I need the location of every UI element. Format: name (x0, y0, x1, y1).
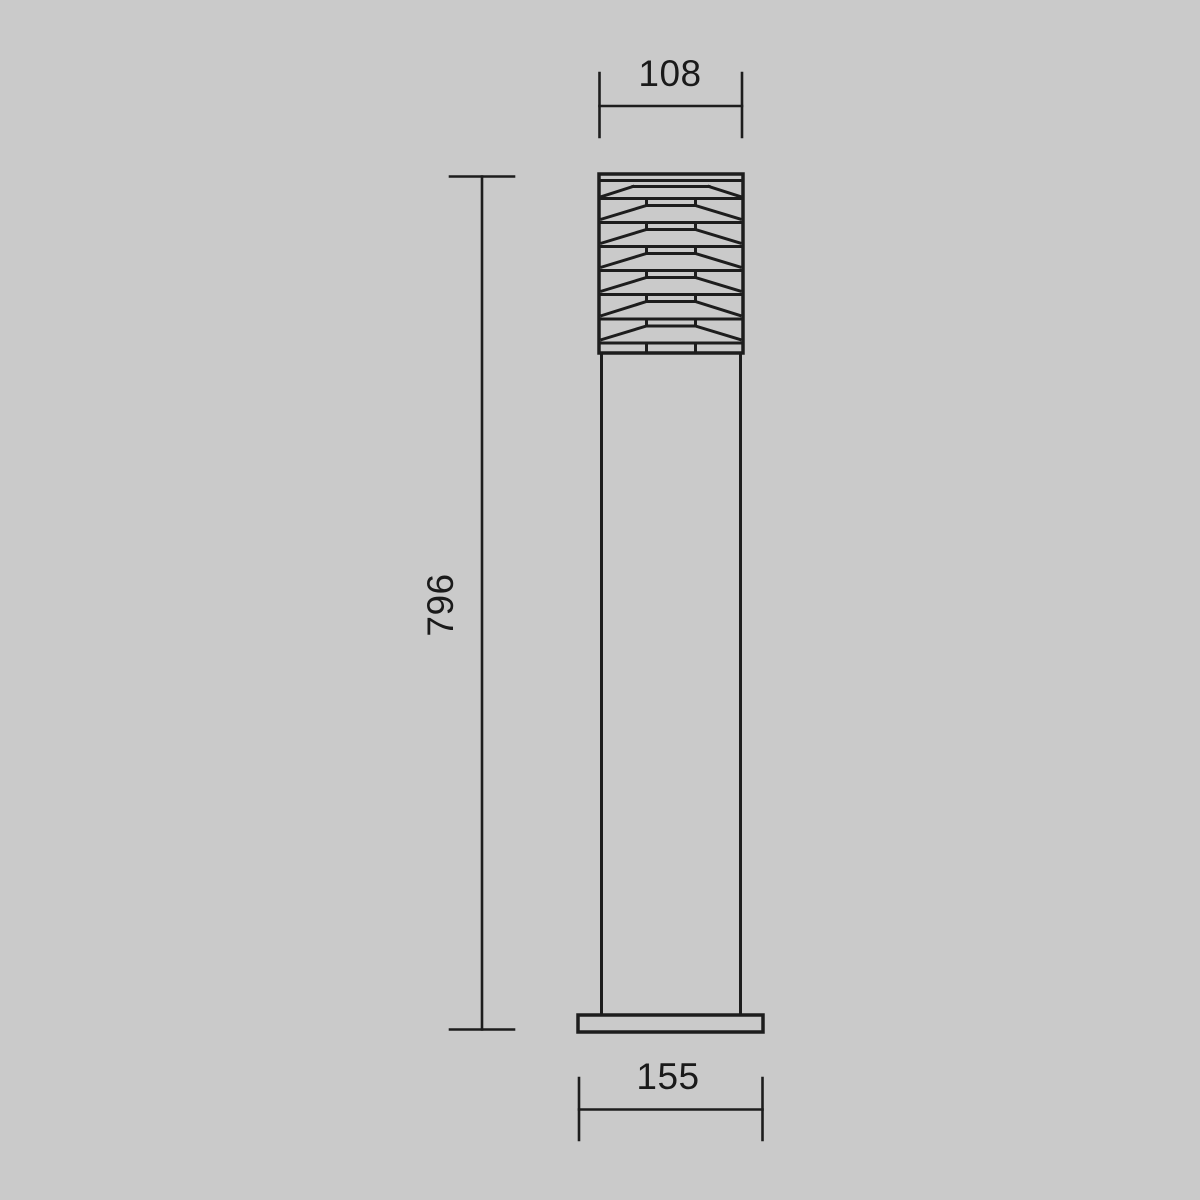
dimension-label-overall-height: 796 (420, 573, 461, 636)
lamp-head (599, 174, 743, 353)
dimension-label-base-width: 155 (636, 1056, 699, 1097)
louver-slat (601, 223, 741, 244)
louver-slat (601, 319, 741, 340)
louver-slat (601, 271, 741, 292)
dimension-overall-height: 796 (420, 177, 514, 1030)
drawing-canvas: 108 796 155 (0, 0, 1200, 1200)
lamp-head-bottom-band (601, 343, 741, 351)
bollard-technical-drawing: 108 796 155 (0, 0, 1200, 1200)
louver-slat (602, 187, 740, 197)
dimension-head-width: 108 (600, 53, 743, 137)
louver-slat (601, 247, 741, 268)
dimension-label-head-width: 108 (638, 53, 701, 94)
pole (602, 353, 741, 1015)
dimension-base-width: 155 (579, 1056, 763, 1140)
base-plate (578, 1015, 763, 1032)
louver-slat (601, 199, 741, 220)
louver-slat (601, 295, 741, 316)
